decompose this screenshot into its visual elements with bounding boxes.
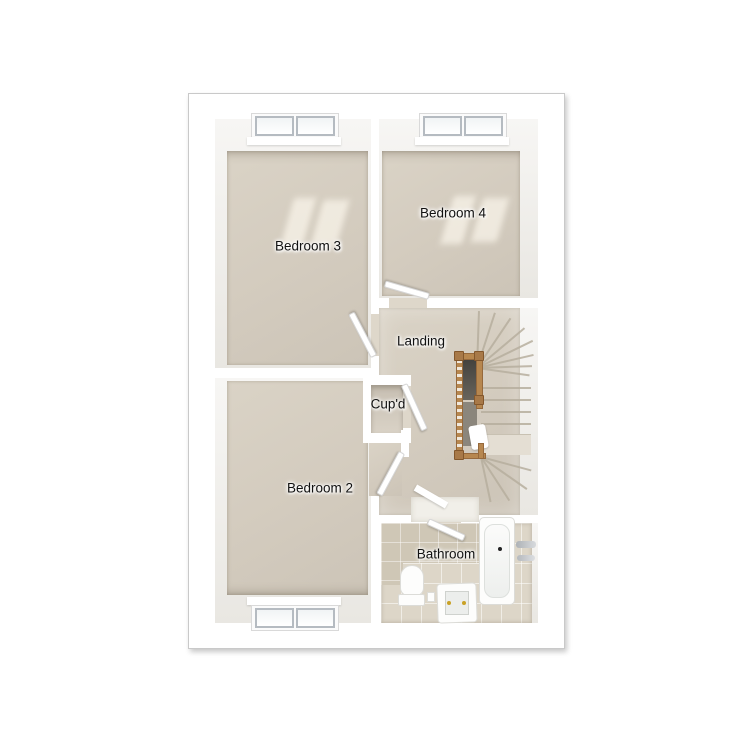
floorplan-image: Bedroom 3 Bedroom 4 Landing Cup'd Bedroo…: [0, 0, 750, 750]
doorway-bedroom4: [389, 298, 427, 308]
bedroom3-floor: [227, 151, 368, 365]
window-pane: [296, 608, 335, 628]
basin-tap: [462, 601, 466, 605]
label-bedroom2: Bedroom 2: [287, 481, 353, 496]
toilet-roll-holder: [427, 592, 435, 602]
stair-tread: [481, 423, 531, 425]
window-pane: [296, 116, 335, 136]
newel-post: [474, 395, 484, 405]
window-sill: [247, 597, 341, 605]
window-pane: [255, 116, 294, 136]
window-sill: [247, 137, 341, 145]
newel-post: [474, 351, 484, 361]
label-cupboard: Cup'd: [371, 397, 406, 412]
toilet-cistern: [398, 594, 425, 606]
window-bedroom3: [251, 113, 339, 139]
window-bedroom4: [419, 113, 507, 139]
toilet: [400, 565, 424, 596]
label-bedroom3: Bedroom 3: [275, 239, 341, 254]
window-pane: [464, 116, 503, 136]
bath-taps: [517, 555, 535, 561]
label-bedroom4: Bedroom 4: [420, 206, 486, 221]
newel-post: [454, 351, 464, 361]
bathtub-drain: [498, 547, 502, 551]
balustrade-foot-rail: [478, 443, 484, 459]
stair-tread: [481, 387, 531, 389]
window-pane: [423, 116, 462, 136]
bathtub-inner: [484, 524, 510, 598]
window-pane: [255, 608, 294, 628]
window-bedroom2: [251, 605, 339, 631]
label-bathroom: Bathroom: [417, 547, 476, 562]
stair-void: [463, 360, 477, 400]
stair-tread: [481, 399, 531, 401]
bath-taps: [516, 541, 536, 548]
window-sill: [415, 137, 509, 145]
newel-post: [454, 450, 464, 460]
basin-tap: [447, 601, 451, 605]
label-landing: Landing: [397, 334, 445, 349]
balustrade-left-rail: [456, 355, 463, 459]
stair-tread: [481, 411, 531, 413]
